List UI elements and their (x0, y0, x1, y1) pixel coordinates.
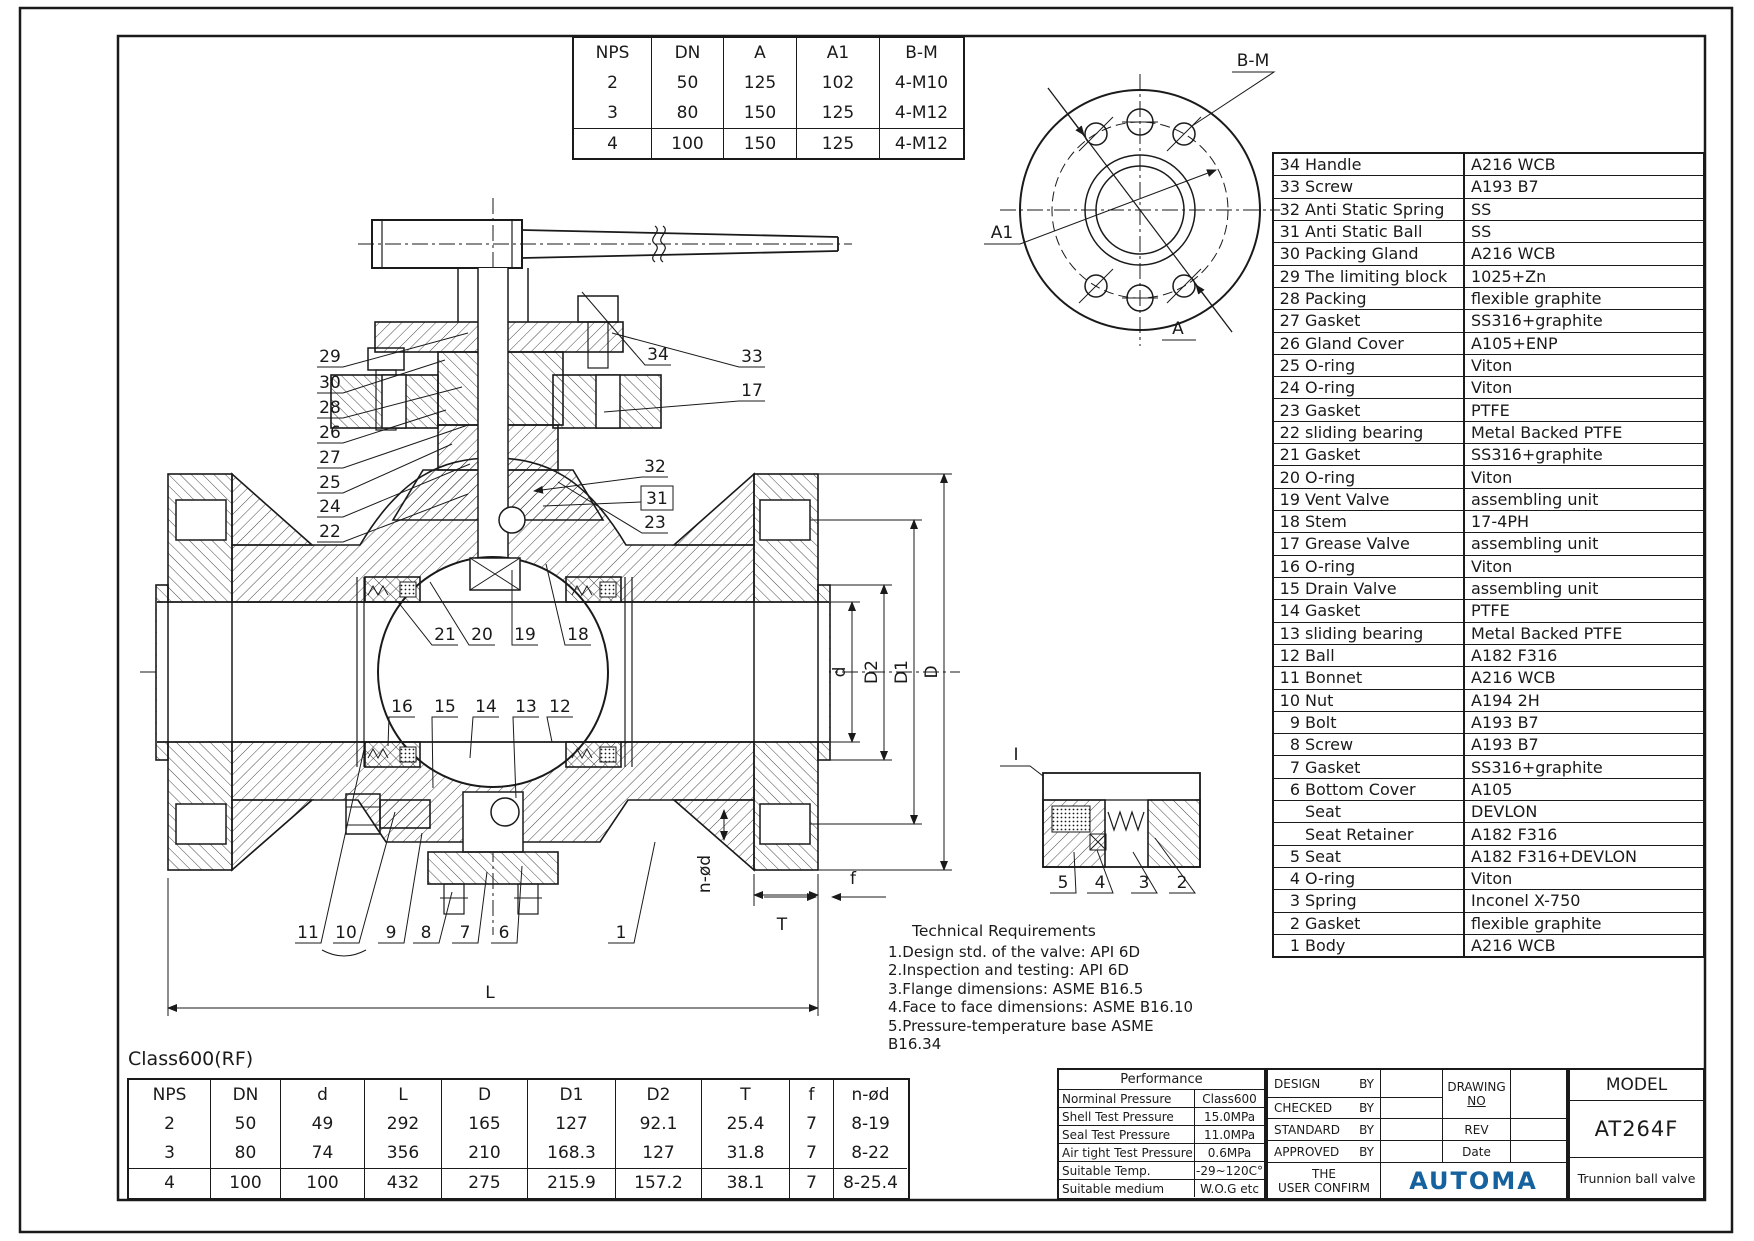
performance-value: -29~120C° (1194, 1161, 1264, 1179)
parts-item-name: Gland Cover (1305, 334, 1404, 353)
dim-table-cell: 100 (211, 1168, 281, 1197)
dim-table-cell: 7 (790, 1168, 834, 1197)
parts-row: 19Vent Valveassembling unit (1274, 489, 1703, 511)
rev-cell: REV (1442, 1118, 1510, 1140)
parts-row: Seat RetainerA182 F316 (1274, 823, 1703, 845)
parts-name-cell: Seat Retainer (1274, 823, 1465, 844)
parts-row: 6Bottom CoverA105 (1274, 779, 1703, 801)
parts-row: 16O-ringViton (1274, 556, 1703, 578)
dim-table-header: d (281, 1080, 365, 1109)
parts-name-cell: 17Grease Valve (1274, 533, 1465, 554)
parts-item-number: 11 (1274, 668, 1300, 687)
dim-table-cell: 2 (129, 1109, 211, 1138)
parts-item-material: DEVLON (1465, 801, 1703, 822)
callout-8: 8 (421, 923, 432, 943)
parts-item-number: 10 (1274, 691, 1300, 710)
dim-table-cell: 7 (790, 1109, 834, 1138)
parts-item-name: sliding bearing (1305, 423, 1423, 442)
dim-table-cell: 168.3 (528, 1139, 616, 1168)
parts-item-material: SS316+graphite (1465, 756, 1703, 777)
parts-item-name: The limiting block (1305, 267, 1447, 286)
parts-item-material: Metal Backed PTFE (1465, 422, 1703, 443)
parts-item-number: 5 (1274, 847, 1300, 866)
dim-table-cell: 127 (528, 1109, 616, 1138)
parts-item-name: Gasket (1305, 311, 1360, 330)
parts-item-material: A182 F316 (1465, 645, 1703, 666)
parts-item-name: Gasket (1305, 445, 1360, 464)
dim-table-cell: 38.1 (702, 1168, 790, 1197)
parts-name-cell: 31Anti Static Ball (1274, 221, 1465, 242)
parts-name-cell: 11Bonnet (1274, 667, 1465, 688)
parts-item-number: 16 (1274, 557, 1300, 576)
parts-row: 21GasketSS316+graphite (1274, 444, 1703, 466)
parts-item-material: SS (1465, 221, 1703, 242)
by-label: BY (1359, 1077, 1374, 1091)
dim-table-cell: 127 (616, 1139, 702, 1168)
parts-item-number: 19 (1274, 490, 1300, 509)
parts-name-cell: 32Anti Static Spring (1274, 199, 1465, 220)
parts-item-number: 25 (1274, 356, 1300, 375)
parts-item-name: Ball (1305, 646, 1335, 665)
parts-name-cell: 34Handle (1274, 154, 1465, 175)
callout-23: 23 (644, 513, 666, 533)
parts-name-cell: 10Nut (1274, 690, 1465, 711)
dim-table-cell: 8-25.4 (834, 1168, 907, 1197)
parts-item-name: Drain Valve (1305, 579, 1397, 598)
parts-item-number: 9 (1274, 713, 1300, 732)
parts-row: 30Packing GlandA216 WCB (1274, 243, 1703, 265)
performance-label: Shell Test Pressure (1059, 1107, 1194, 1125)
technical-requirements-items: 1.Design std. of the valve: API 6D2.Insp… (888, 943, 1208, 1054)
parts-name-cell: 4O-ring (1274, 868, 1465, 889)
parts-row: 28Packingflexible graphite (1274, 288, 1703, 310)
approved-by-cell: APPROVED BY (1268, 1140, 1380, 1162)
parts-name-cell: 22sliding bearing (1274, 422, 1465, 443)
flange-table-cell: 4-M12 (880, 98, 963, 128)
dim-table-header: D1 (528, 1080, 616, 1109)
parts-item-number: 8 (1274, 735, 1300, 754)
class-rating-label: Class600(RF) (128, 1048, 253, 1070)
parts-item-number: 21 (1274, 445, 1300, 464)
performance-value: W.O.G etc (1194, 1179, 1264, 1197)
flange-table-cell: 4-M12 (880, 128, 963, 158)
performance-rows: Norminal PressureClass600Shell Test Pres… (1059, 1089, 1264, 1197)
flange-table-cell: 4 (574, 128, 652, 158)
parts-item-material: A193 B7 (1465, 176, 1703, 197)
parts-item-material: Viton (1465, 466, 1703, 487)
parts-item-material: Viton (1465, 868, 1703, 889)
flange-table-cell: 4-M10 (880, 68, 963, 98)
callout-5: 5 (1058, 873, 1069, 893)
parts-row: 34HandleA216 WCB (1274, 154, 1703, 176)
dim-table-cell: 50 (211, 1109, 281, 1138)
detail-label-i: I (1013, 745, 1018, 765)
date-value (1510, 1140, 1566, 1162)
parts-row: 13sliding bearingMetal Backed PTFE (1274, 623, 1703, 645)
performance-label: Seal Test Pressure (1059, 1125, 1194, 1143)
parts-row: 10NutA194 2H (1274, 690, 1703, 712)
callout-6: 6 (499, 923, 510, 943)
dim-table-header: DN (211, 1080, 281, 1109)
section-label-a: A (1172, 319, 1184, 339)
drawing-no-cell: DRAWING NO (1442, 1070, 1510, 1118)
flange-spec-table: NPSDNAA1B-M2501251024-M103801501254-M124… (572, 36, 965, 160)
parts-item-name: O-ring (1305, 557, 1355, 576)
parts-item-material: SS (1465, 199, 1703, 220)
flange-table-header: NPS (574, 38, 652, 68)
parts-item-number: 27 (1274, 311, 1300, 330)
user-confirm-line-1: THE (1312, 1167, 1336, 1181)
parts-name-cell: 7Gasket (1274, 756, 1465, 777)
dim-table-cell: 4 (129, 1168, 211, 1197)
parts-item-material: A182 F316 (1465, 823, 1703, 844)
parts-item-material: A194 2H (1465, 690, 1703, 711)
performance-value: Class600 (1194, 1089, 1264, 1107)
dim-table-cell: 356 (365, 1139, 442, 1168)
callout-14: 14 (475, 697, 497, 717)
parts-item-material: A105 (1465, 779, 1703, 800)
dim-table-cell: 157.2 (616, 1168, 702, 1197)
standard-by-value (1380, 1118, 1442, 1140)
performance-label: Air tight Test Pressure (1059, 1143, 1194, 1161)
user-confirm-cell: THE USER CONFIRM (1268, 1162, 1380, 1198)
parts-row: 23GasketPTFE (1274, 399, 1703, 421)
flange-table-cell: 150 (724, 128, 797, 158)
parts-item-number: 32 (1274, 200, 1300, 219)
parts-row: 4O-ringViton (1274, 868, 1703, 890)
parts-item-material: A216 WCB (1465, 935, 1703, 956)
dim-table-header: NPS (129, 1080, 211, 1109)
flange-table-cell: 50 (652, 68, 724, 98)
parts-item-name: Anti Static Ball (1305, 222, 1422, 241)
callout-16: 16 (391, 697, 413, 717)
parts-item-number: 34 (1274, 155, 1300, 174)
callout-19: 19 (514, 625, 536, 645)
parts-name-cell: 18Stem (1274, 511, 1465, 532)
parts-row: 32Anti Static SpringSS (1274, 199, 1703, 221)
approved-label: APPROVED (1274, 1145, 1339, 1159)
parts-row: 14GasketPTFE (1274, 600, 1703, 622)
parts-item-number: 31 (1274, 222, 1300, 241)
parts-name-cell: 19Vent Valve (1274, 489, 1465, 510)
parts-item-name: Bolt (1305, 713, 1336, 732)
parts-row: 2Gasketflexible graphite (1274, 913, 1703, 935)
technical-requirements: Technical Requirements 1.Design std. of … (888, 922, 1208, 1054)
parts-row: 29The limiting block1025+Zn (1274, 266, 1703, 288)
dim-table-header: T (702, 1080, 790, 1109)
parts-item-name: Gasket (1305, 601, 1360, 620)
performance-label: Suitable medium (1059, 1179, 1194, 1197)
section-label-a1: A1 (991, 223, 1013, 243)
performance-value: 11.0MPa (1194, 1125, 1264, 1143)
parts-row: 33ScrewA193 B7 (1274, 176, 1703, 198)
parts-item-number: 18 (1274, 512, 1300, 531)
callout-11: 11 (297, 923, 319, 943)
parts-item-material: PTFE (1465, 399, 1703, 420)
parts-item-number: 6 (1274, 780, 1300, 799)
parts-item-material: SS316+graphite (1465, 444, 1703, 465)
callout-12: 12 (549, 697, 571, 717)
parts-item-material: Viton (1465, 355, 1703, 376)
parts-item-material: SS316+graphite (1465, 310, 1703, 331)
parts-item-number: 2 (1274, 914, 1300, 933)
user-confirm-line-2: USER CONFIRM (1278, 1181, 1370, 1195)
parts-item-number: 14 (1274, 601, 1300, 620)
date-cell: Date (1442, 1140, 1510, 1162)
product-name: Trunnion ball valve (1570, 1158, 1703, 1198)
parts-row: 26Gland CoverA105+ENP (1274, 333, 1703, 355)
parts-item-name: O-ring (1305, 356, 1355, 375)
parts-name-cell: 6Bottom Cover (1274, 779, 1465, 800)
parts-item-number: 26 (1274, 334, 1300, 353)
technical-requirement-item: 2.Inspection and testing: API 6D (888, 961, 1208, 980)
flange-table-cell: 80 (652, 98, 724, 128)
parts-item-number: 22 (1274, 423, 1300, 442)
parts-item-name: Spring (1305, 891, 1357, 910)
parts-item-number: 29 (1274, 267, 1300, 286)
parts-row: 17Grease Valveassembling unit (1274, 533, 1703, 555)
parts-name-cell: 15Drain Valve (1274, 578, 1465, 599)
dim-table-cell: 8-22 (834, 1139, 907, 1168)
dim-table-cell: 432 (365, 1168, 442, 1197)
parts-item-name: Screw (1305, 735, 1353, 754)
parts-item-name: Gasket (1305, 401, 1360, 420)
parts-item-name: Screw (1305, 177, 1353, 196)
parts-row: 3SpringInconel X-750 (1274, 890, 1703, 912)
parts-item-number: 7 (1274, 758, 1300, 777)
callout-10: 10 (335, 923, 357, 943)
dim-table-cell: 3 (129, 1139, 211, 1168)
parts-item-material: assembling unit (1465, 489, 1703, 510)
callout-20: 20 (471, 625, 493, 645)
callout-9: 9 (386, 923, 397, 943)
callout-7: 7 (460, 923, 471, 943)
dim-table-cell: 7 (790, 1139, 834, 1168)
flange-table-header: B-M (880, 38, 963, 68)
parts-item-name: Seat (1305, 847, 1341, 866)
drawing-no-value (1510, 1070, 1566, 1118)
technical-requirement-item: 5.Pressure-temperature base ASME B16.34 (888, 1017, 1208, 1054)
parts-name-cell: 29The limiting block (1274, 266, 1465, 287)
parts-item-number: 12 (1274, 646, 1300, 665)
parts-item-name: Seat (1305, 802, 1341, 821)
parts-item-name: Nut (1305, 691, 1333, 710)
dim-table-header: f (790, 1080, 834, 1109)
drawing-sheet: d D2 D1 D L T f n-ød 29 30 (0, 0, 1754, 1241)
dim-table-cell: 292 (365, 1109, 442, 1138)
performance-label: Norminal Pressure (1059, 1089, 1194, 1107)
parts-row: 22sliding bearingMetal Backed PTFE (1274, 422, 1703, 444)
callout-15: 15 (434, 697, 456, 717)
dim-table-header: L (365, 1080, 442, 1109)
performance-value: 0.6MPa (1194, 1143, 1264, 1161)
checked-by-cell: CHECKED BY (1268, 1097, 1380, 1118)
parts-item-material: flexible graphite (1465, 288, 1703, 309)
parts-item-number: 23 (1274, 401, 1300, 420)
parts-row: 1BodyA216 WCB (1274, 935, 1703, 956)
parts-name-cell: 25O-ring (1274, 355, 1465, 376)
parts-row: 12BallA182 F316 (1274, 645, 1703, 667)
parts-item-name: Vent Valve (1305, 490, 1389, 509)
parts-item-name: O-ring (1305, 378, 1355, 397)
parts-item-name: Packing Gland (1305, 244, 1419, 263)
parts-item-number: 30 (1274, 244, 1300, 263)
flange-table-cell: 2 (574, 68, 652, 98)
parts-name-cell: 1Body (1274, 935, 1465, 956)
flange-table-cell: 125 (724, 68, 797, 98)
parts-item-material: A193 B7 (1465, 712, 1703, 733)
parts-item-name: Gasket (1305, 758, 1360, 777)
parts-item-number: 1 (1274, 936, 1300, 955)
dim-table-cell: 92.1 (616, 1109, 702, 1138)
technical-requirement-item: 4.Face to face dimensions: ASME B16.10 (888, 998, 1208, 1017)
parts-item-material: assembling unit (1465, 578, 1703, 599)
parts-row: 15Drain Valveassembling unit (1274, 578, 1703, 600)
parts-name-cell: 13sliding bearing (1274, 623, 1465, 644)
parts-item-number: 28 (1274, 289, 1300, 308)
callout-29: 29 (319, 347, 341, 367)
technical-requirement-item: 1.Design std. of the valve: API 6D (888, 943, 1208, 962)
callout-28: 28 (319, 398, 341, 418)
parts-name-cell: 28Packing (1274, 288, 1465, 309)
parts-row: 20O-ringViton (1274, 466, 1703, 488)
dim-f: f (850, 869, 857, 889)
parts-row: 18Stem17-4PH (1274, 511, 1703, 533)
parts-item-name: O-ring (1305, 468, 1355, 487)
parts-name-cell: 26Gland Cover (1274, 333, 1465, 354)
flange-table-cell: 3 (574, 98, 652, 128)
valve-cross-section (156, 220, 838, 914)
callout-4: 4 (1095, 873, 1106, 893)
checked-label: CHECKED (1274, 1101, 1332, 1115)
dim-table-cell: 100 (281, 1168, 365, 1197)
model-value: AT264F (1570, 1100, 1703, 1158)
parts-row: 11BonnetA216 WCB (1274, 667, 1703, 689)
parts-item-number: 20 (1274, 468, 1300, 487)
standard-label: STANDARD (1274, 1123, 1340, 1137)
parts-item-name: sliding bearing (1305, 624, 1423, 643)
automa-logo: AUTOMA (1380, 1162, 1566, 1198)
callout-13: 13 (515, 697, 537, 717)
flange-face-view: B-M A1 A (984, 51, 1280, 346)
parts-item-name: Body (1305, 936, 1345, 955)
performance-value: 15.0MPa (1194, 1107, 1264, 1125)
callout-18: 18 (567, 625, 589, 645)
parts-item-material: 17-4PH (1465, 511, 1703, 532)
dim-L: L (485, 983, 495, 1003)
model-block: MODEL AT264F Trunnion ball valve (1568, 1068, 1705, 1200)
flange-table-cell: 150 (724, 98, 797, 128)
parts-item-material: A216 WCB (1465, 154, 1703, 175)
parts-row: 9BoltA193 B7 (1274, 712, 1703, 734)
technical-requirement-item: 3.Flange dimensions: ASME B16.5 (888, 980, 1208, 999)
parts-item-name: Gasket (1305, 914, 1360, 933)
parts-name-cell: 14Gasket (1274, 600, 1465, 621)
flange-table-cell: 102 (797, 68, 880, 98)
parts-name-cell: 30Packing Gland (1274, 243, 1465, 264)
dim-D1: D1 (892, 660, 912, 684)
model-label: MODEL (1570, 1070, 1703, 1100)
dim-table-cell: 275 (442, 1168, 528, 1197)
design-label: DESIGN (1274, 1077, 1320, 1091)
parts-name-cell: 20O-ring (1274, 466, 1465, 487)
by-label: BY (1359, 1123, 1374, 1137)
parts-row: 24O-ringViton (1274, 377, 1703, 399)
parts-name-cell: 23Gasket (1274, 399, 1465, 420)
callout-21: 21 (434, 625, 456, 645)
callout-22: 22 (319, 522, 341, 542)
drawing-no-label-2: NO (1467, 1094, 1485, 1108)
standard-by-cell: STANDARD BY (1268, 1118, 1380, 1140)
parts-item-name: Stem (1305, 512, 1347, 531)
performance-label: Suitable Temp. (1059, 1161, 1194, 1179)
approved-by-value (1380, 1140, 1442, 1162)
by-label: BY (1359, 1101, 1374, 1115)
callout-34: 34 (647, 345, 669, 365)
parts-item-material: Inconel X-750 (1465, 890, 1703, 911)
dim-D2: D2 (862, 660, 882, 684)
callout-27: 27 (319, 448, 341, 468)
parts-item-material: A105+ENP (1465, 333, 1703, 354)
callout-1: 1 (616, 923, 627, 943)
parts-item-material: Viton (1465, 377, 1703, 398)
parts-item-material: assembling unit (1465, 533, 1703, 554)
flange-table-cell: 125 (797, 98, 880, 128)
design-by-cell: DESIGN BY (1268, 1070, 1380, 1097)
checked-by-value (1380, 1097, 1442, 1118)
callout-30: 30 (319, 373, 341, 393)
dimension-table: NPSDNdLDD1D2Tfn-ød2504929216512792.125.4… (127, 1078, 910, 1200)
detail-section-i: I 5 4 3 2 (1000, 745, 1200, 893)
dim-n-od: n-ød (695, 855, 715, 893)
title-block: DESIGN BY CHECKED BY STANDARD BY APPROVE… (1266, 1068, 1568, 1200)
parts-row: 8ScrewA193 B7 (1274, 734, 1703, 756)
parts-row: SeatDEVLON (1274, 801, 1703, 823)
parts-name-cell: 3Spring (1274, 890, 1465, 911)
parts-name-cell: Seat (1274, 801, 1465, 822)
parts-item-number: 24 (1274, 378, 1300, 397)
parts-item-material: A193 B7 (1465, 734, 1703, 755)
design-by-value (1380, 1070, 1442, 1097)
dim-D: D (922, 665, 942, 678)
parts-name-cell: 12Ball (1274, 645, 1465, 666)
flange-table-cell: 125 (797, 128, 880, 158)
flange-table-header: A1 (797, 38, 880, 68)
rev-value (1510, 1118, 1566, 1140)
parts-item-name: Packing (1305, 289, 1367, 308)
callout-26: 26 (319, 423, 341, 443)
parts-item-name: Anti Static Spring (1305, 200, 1444, 219)
technical-requirements-title: Technical Requirements (912, 922, 1208, 941)
dim-table-cell: 210 (442, 1139, 528, 1168)
callout-2: 2 (1177, 873, 1188, 893)
parts-item-material: 1025+Zn (1465, 266, 1703, 287)
parts-item-name: O-ring (1305, 869, 1355, 888)
parts-name-cell: 33Screw (1274, 176, 1465, 197)
parts-item-name: Seat Retainer (1305, 825, 1414, 844)
flange-table-header: A (724, 38, 797, 68)
parts-row: 31Anti Static BallSS (1274, 221, 1703, 243)
performance-table: Performance Norminal PressureClass600She… (1057, 1068, 1266, 1200)
parts-item-material: Metal Backed PTFE (1465, 623, 1703, 644)
callout-24: 24 (319, 497, 341, 517)
callout-31: 31 (646, 489, 668, 509)
parts-item-number: 3 (1274, 891, 1300, 910)
callout-33: 33 (741, 347, 763, 367)
parts-name-cell: 8Screw (1274, 734, 1465, 755)
parts-row: 7GasketSS316+graphite (1274, 756, 1703, 778)
parts-name-cell: 5Seat (1274, 846, 1465, 867)
